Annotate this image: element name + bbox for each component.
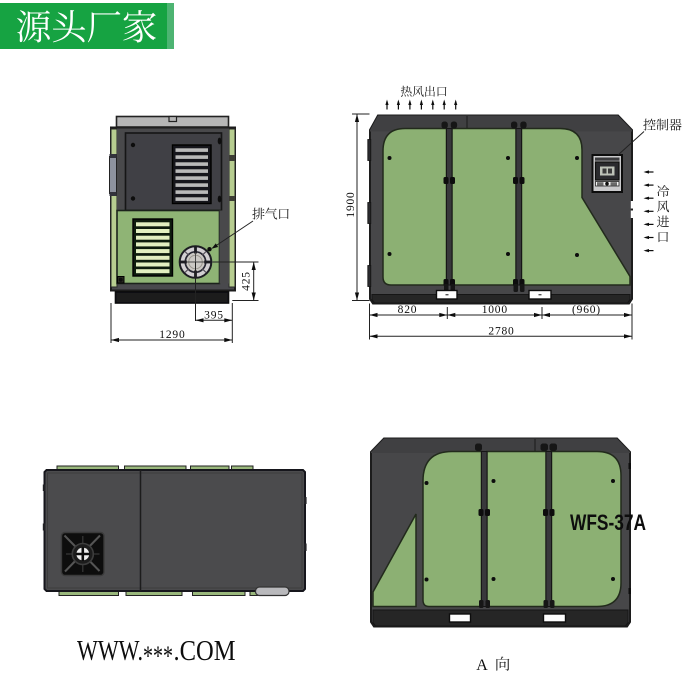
svg-text:425: 425 (241, 271, 253, 291)
svg-text:2780: 2780 (488, 325, 514, 337)
svg-text:395: 395 (204, 310, 224, 322)
svg-text:***: *** (143, 641, 173, 673)
svg-text:1000: 1000 (482, 304, 508, 316)
svg-text:1290: 1290 (159, 329, 185, 341)
svg-text:1900: 1900 (345, 191, 357, 217)
svg-text:WWW.: WWW. (77, 635, 143, 667)
svg-text:WFS-37A: WFS-37A (570, 510, 646, 535)
svg-text:820: 820 (398, 304, 418, 316)
svg-text:A: A (476, 657, 488, 674)
svg-text:.COM: .COM (174, 635, 236, 667)
svg-text:(960): (960) (572, 304, 601, 316)
